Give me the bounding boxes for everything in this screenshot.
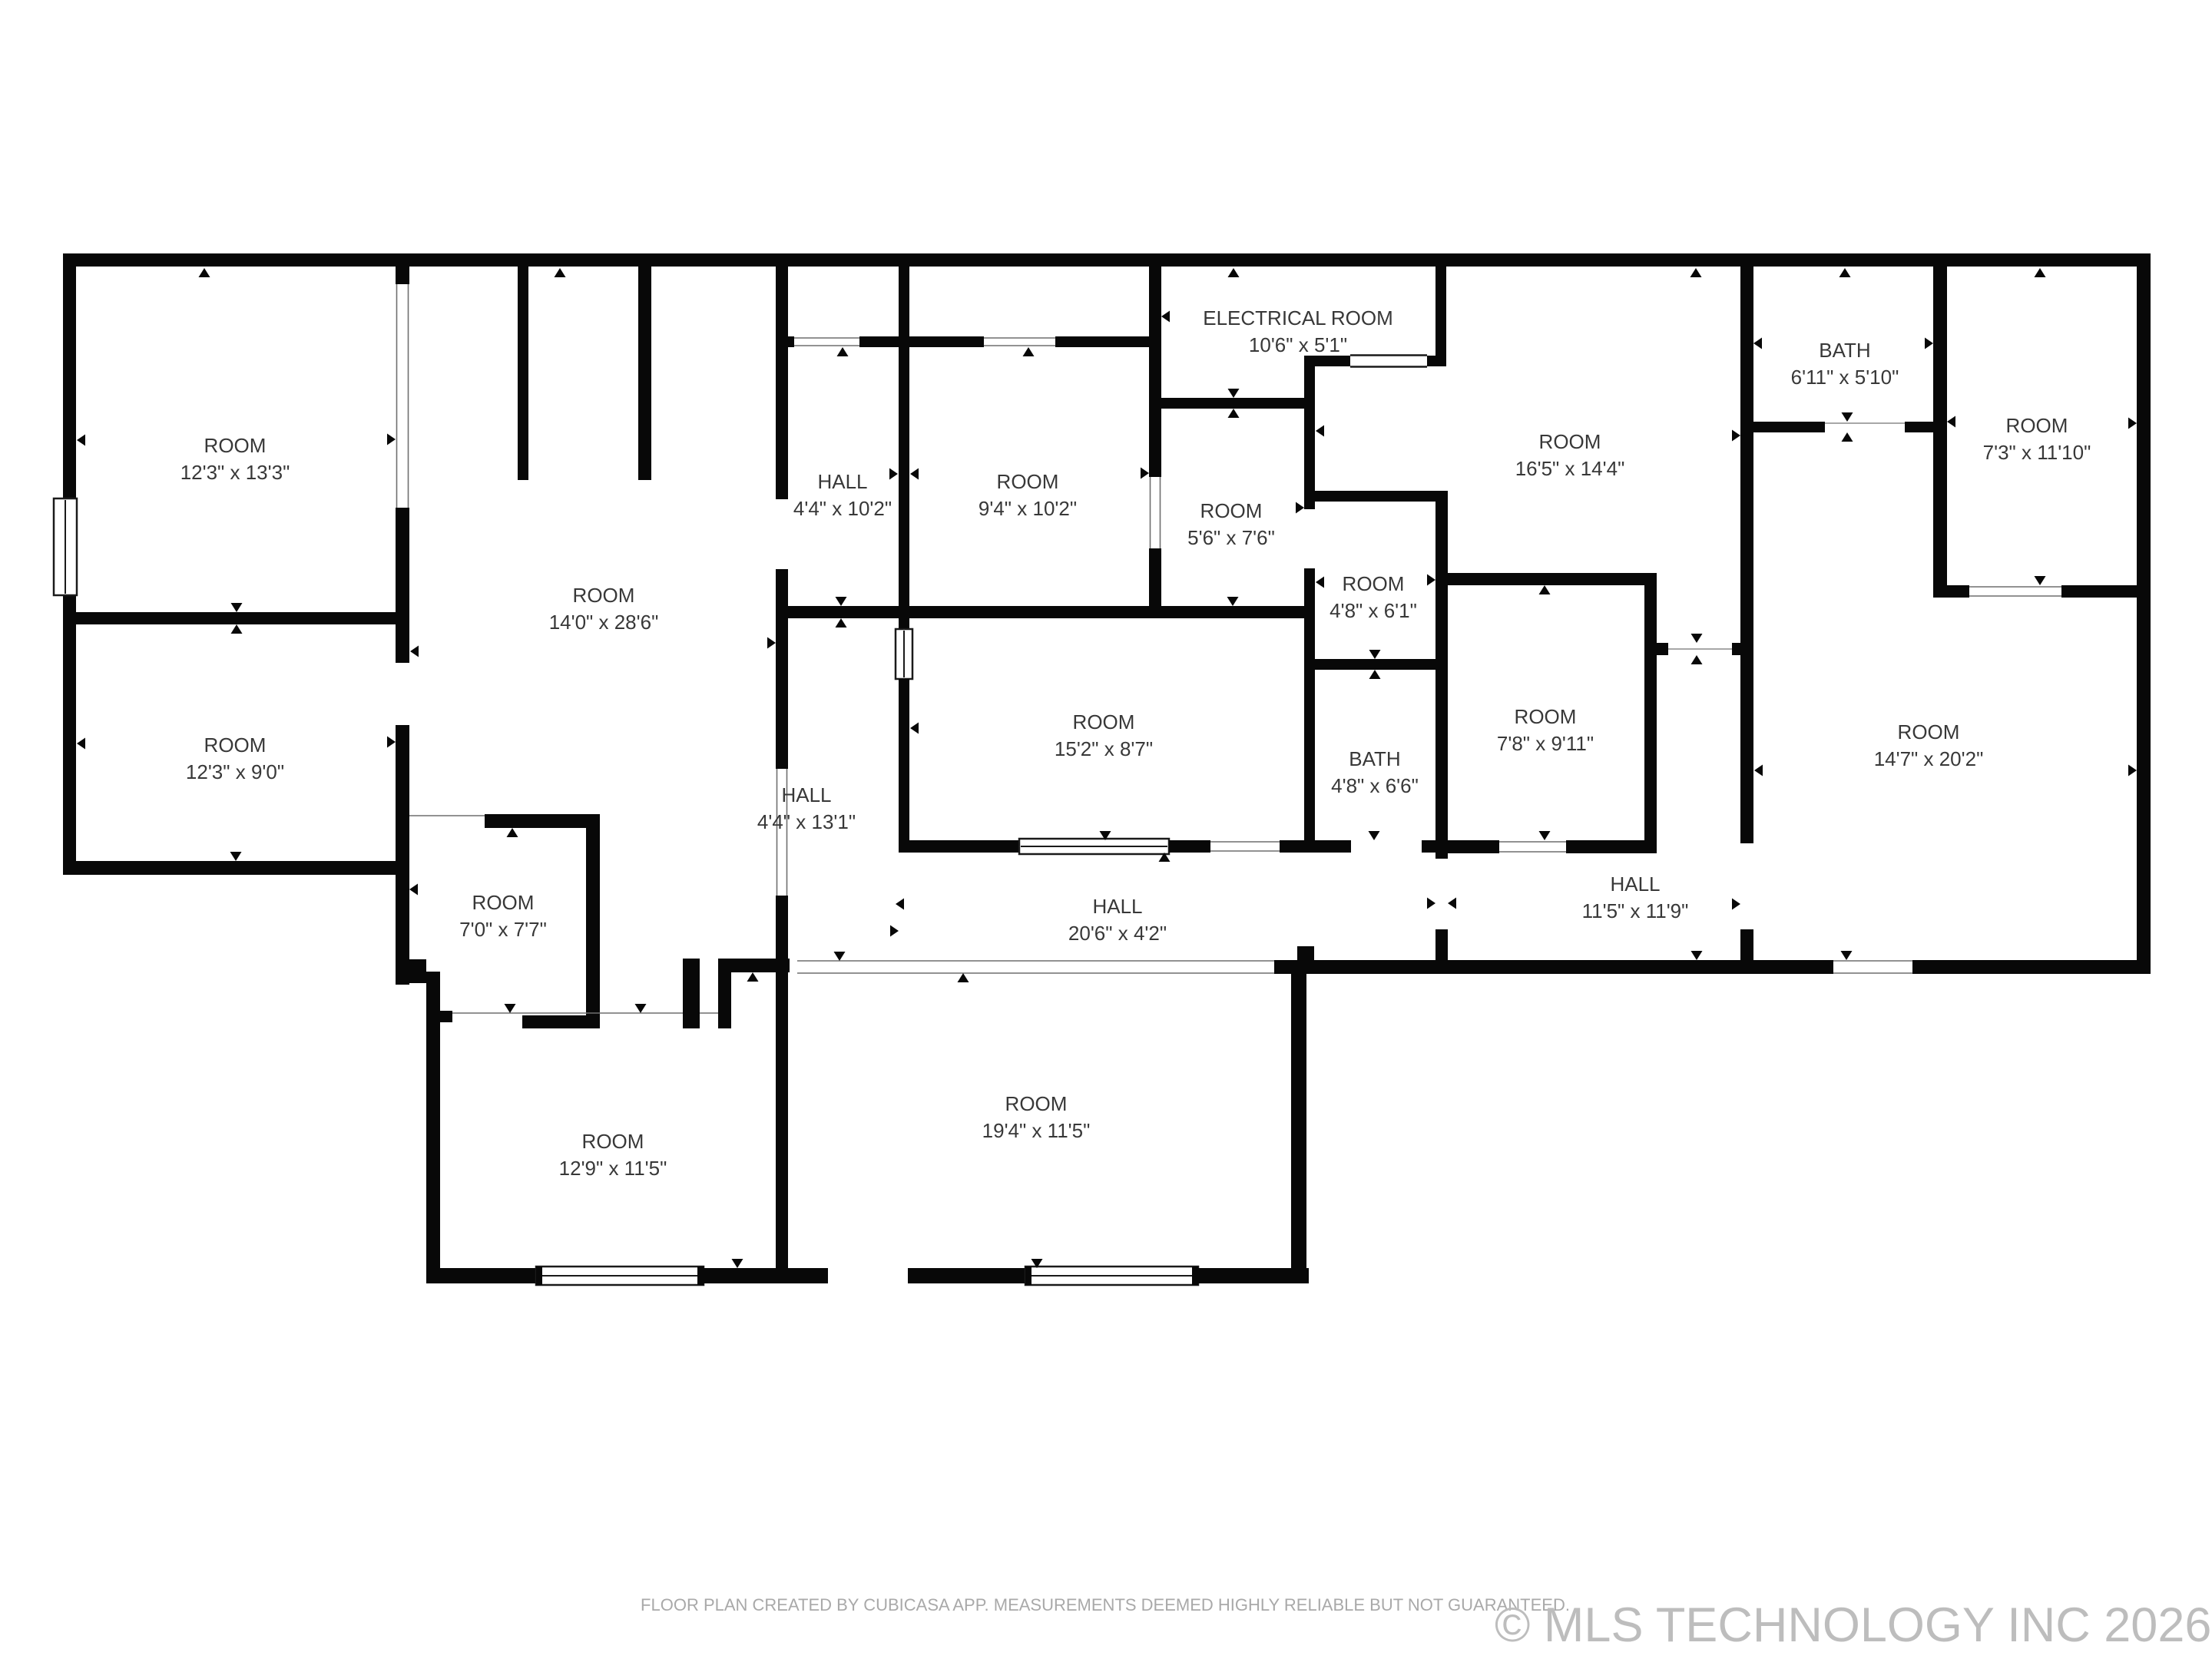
svg-text:ROOM: ROOM <box>1539 430 1601 453</box>
svg-text:ROOM: ROOM <box>1005 1092 1068 1115</box>
svg-text:5'6" x 7'6": 5'6" x 7'6" <box>1187 526 1275 549</box>
svg-text:16'5" x 14'4": 16'5" x 14'4" <box>1515 457 1625 480</box>
svg-text:7'3" x 11'10": 7'3" x 11'10" <box>1983 441 2091 464</box>
svg-text:HALL: HALL <box>1610 873 1660 896</box>
svg-text:11'5" x 11'9": 11'5" x 11'9" <box>1582 899 1689 922</box>
svg-text:FLOOR PLAN CREATED BY CUBICASA: FLOOR PLAN CREATED BY CUBICASA APP. MEAS… <box>641 1595 1570 1614</box>
svg-text:4'4" x 10'2": 4'4" x 10'2" <box>793 497 892 520</box>
svg-text:12'9" x 11'5": 12'9" x 11'5" <box>559 1157 667 1180</box>
svg-text:7'0" x 7'7": 7'0" x 7'7" <box>459 918 547 941</box>
svg-text:ROOM: ROOM <box>1200 499 1263 522</box>
svg-text:ROOM: ROOM <box>204 733 267 757</box>
svg-text:HALL: HALL <box>781 783 831 806</box>
svg-text:ROOM: ROOM <box>204 434 267 457</box>
svg-text:14'7" x 20'2": 14'7" x 20'2" <box>1874 747 1984 770</box>
svg-text:ROOM: ROOM <box>1898 720 1960 743</box>
svg-text:4'4" x 13'1": 4'4" x 13'1" <box>757 810 856 833</box>
svg-text:BATH: BATH <box>1819 339 1870 362</box>
svg-text:12'3" x 13'3": 12'3" x 13'3" <box>180 461 290 484</box>
svg-text:HALL: HALL <box>817 470 867 493</box>
svg-text:ROOM: ROOM <box>573 584 635 607</box>
svg-text:7'8" x 9'11": 7'8" x 9'11" <box>1497 732 1594 755</box>
svg-text:© MLS TECHNOLOGY INC 2026: © MLS TECHNOLOGY INC 2026 <box>1495 1598 2211 1652</box>
svg-text:ROOM: ROOM <box>1343 572 1405 595</box>
svg-text:ELECTRICAL ROOM: ELECTRICAL ROOM <box>1203 306 1393 329</box>
svg-text:12'3" x 9'0": 12'3" x 9'0" <box>186 760 284 783</box>
svg-text:10'6" x 5'1": 10'6" x 5'1" <box>1249 333 1347 356</box>
svg-text:4'8" x 6'1": 4'8" x 6'1" <box>1330 599 1417 622</box>
svg-text:ROOM: ROOM <box>582 1130 644 1153</box>
svg-text:15'2" x 8'7": 15'2" x 8'7" <box>1055 737 1153 760</box>
svg-text:ROOM: ROOM <box>472 891 535 914</box>
svg-text:HALL: HALL <box>1092 895 1142 918</box>
svg-text:4'8" x 6'6": 4'8" x 6'6" <box>1331 774 1419 797</box>
svg-text:19'4" x 11'5": 19'4" x 11'5" <box>982 1119 1091 1142</box>
svg-text:14'0" x 28'6": 14'0" x 28'6" <box>549 611 659 634</box>
svg-text:ROOM: ROOM <box>997 470 1059 493</box>
svg-text:6'11" x 5'10": 6'11" x 5'10" <box>1791 366 1899 389</box>
svg-text:9'4" x 10'2": 9'4" x 10'2" <box>979 497 1077 520</box>
svg-text:BATH: BATH <box>1349 747 1400 770</box>
svg-text:20'6" x 4'2": 20'6" x 4'2" <box>1068 922 1167 945</box>
svg-text:ROOM: ROOM <box>2006 414 2068 437</box>
svg-text:ROOM: ROOM <box>1515 705 1577 728</box>
svg-text:ROOM: ROOM <box>1073 710 1135 733</box>
